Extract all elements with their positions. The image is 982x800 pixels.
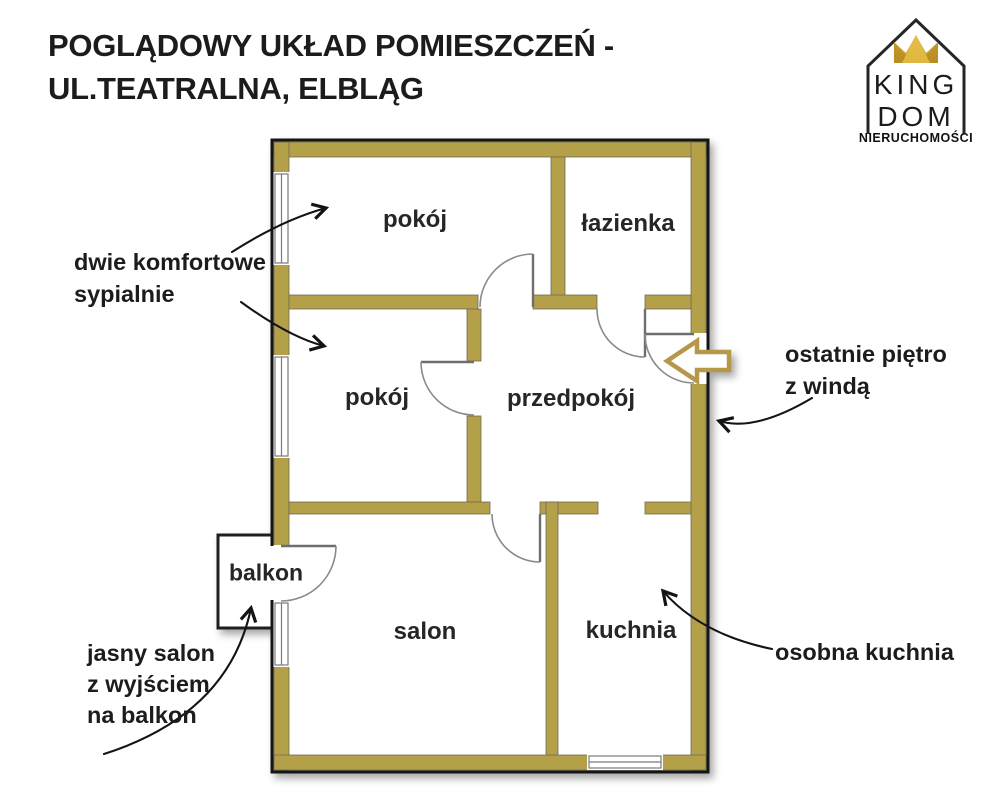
room-label-bedroom1: pokój bbox=[383, 206, 447, 234]
room-label-bathroom: łazienka bbox=[581, 210, 674, 238]
note-top-floor: ostatnie piętro z windą bbox=[785, 338, 947, 402]
logo-tagline: NIERUCHOMOŚCI bbox=[859, 130, 973, 144]
arrow-to-kitchen bbox=[663, 591, 772, 649]
room-label-living-room: salon bbox=[394, 618, 457, 646]
note-kitchen: osobna kuchnia bbox=[775, 636, 954, 668]
note-bedrooms: dwie komfortowe sypialnie bbox=[74, 246, 266, 310]
note-balcony: jasny salon z wyjściem na balkon bbox=[87, 638, 215, 731]
kingdom-logo: KING DOM NIERUCHOMOŚCI bbox=[852, 6, 980, 144]
room-label-balcony: balkon bbox=[229, 560, 303, 587]
page: POGLĄDOWY UKŁAD POMIESZCZEŃ - UL.TEATRAL… bbox=[0, 0, 982, 800]
logo-word-king: KING bbox=[874, 69, 958, 100]
crown-icon bbox=[894, 35, 938, 63]
logo-word-dom: DOM bbox=[877, 101, 954, 132]
room-label-bedroom2: pokój bbox=[345, 384, 409, 412]
room-label-kitchen: kuchnia bbox=[586, 617, 677, 645]
room-label-hallway: przedpokój bbox=[507, 385, 635, 413]
